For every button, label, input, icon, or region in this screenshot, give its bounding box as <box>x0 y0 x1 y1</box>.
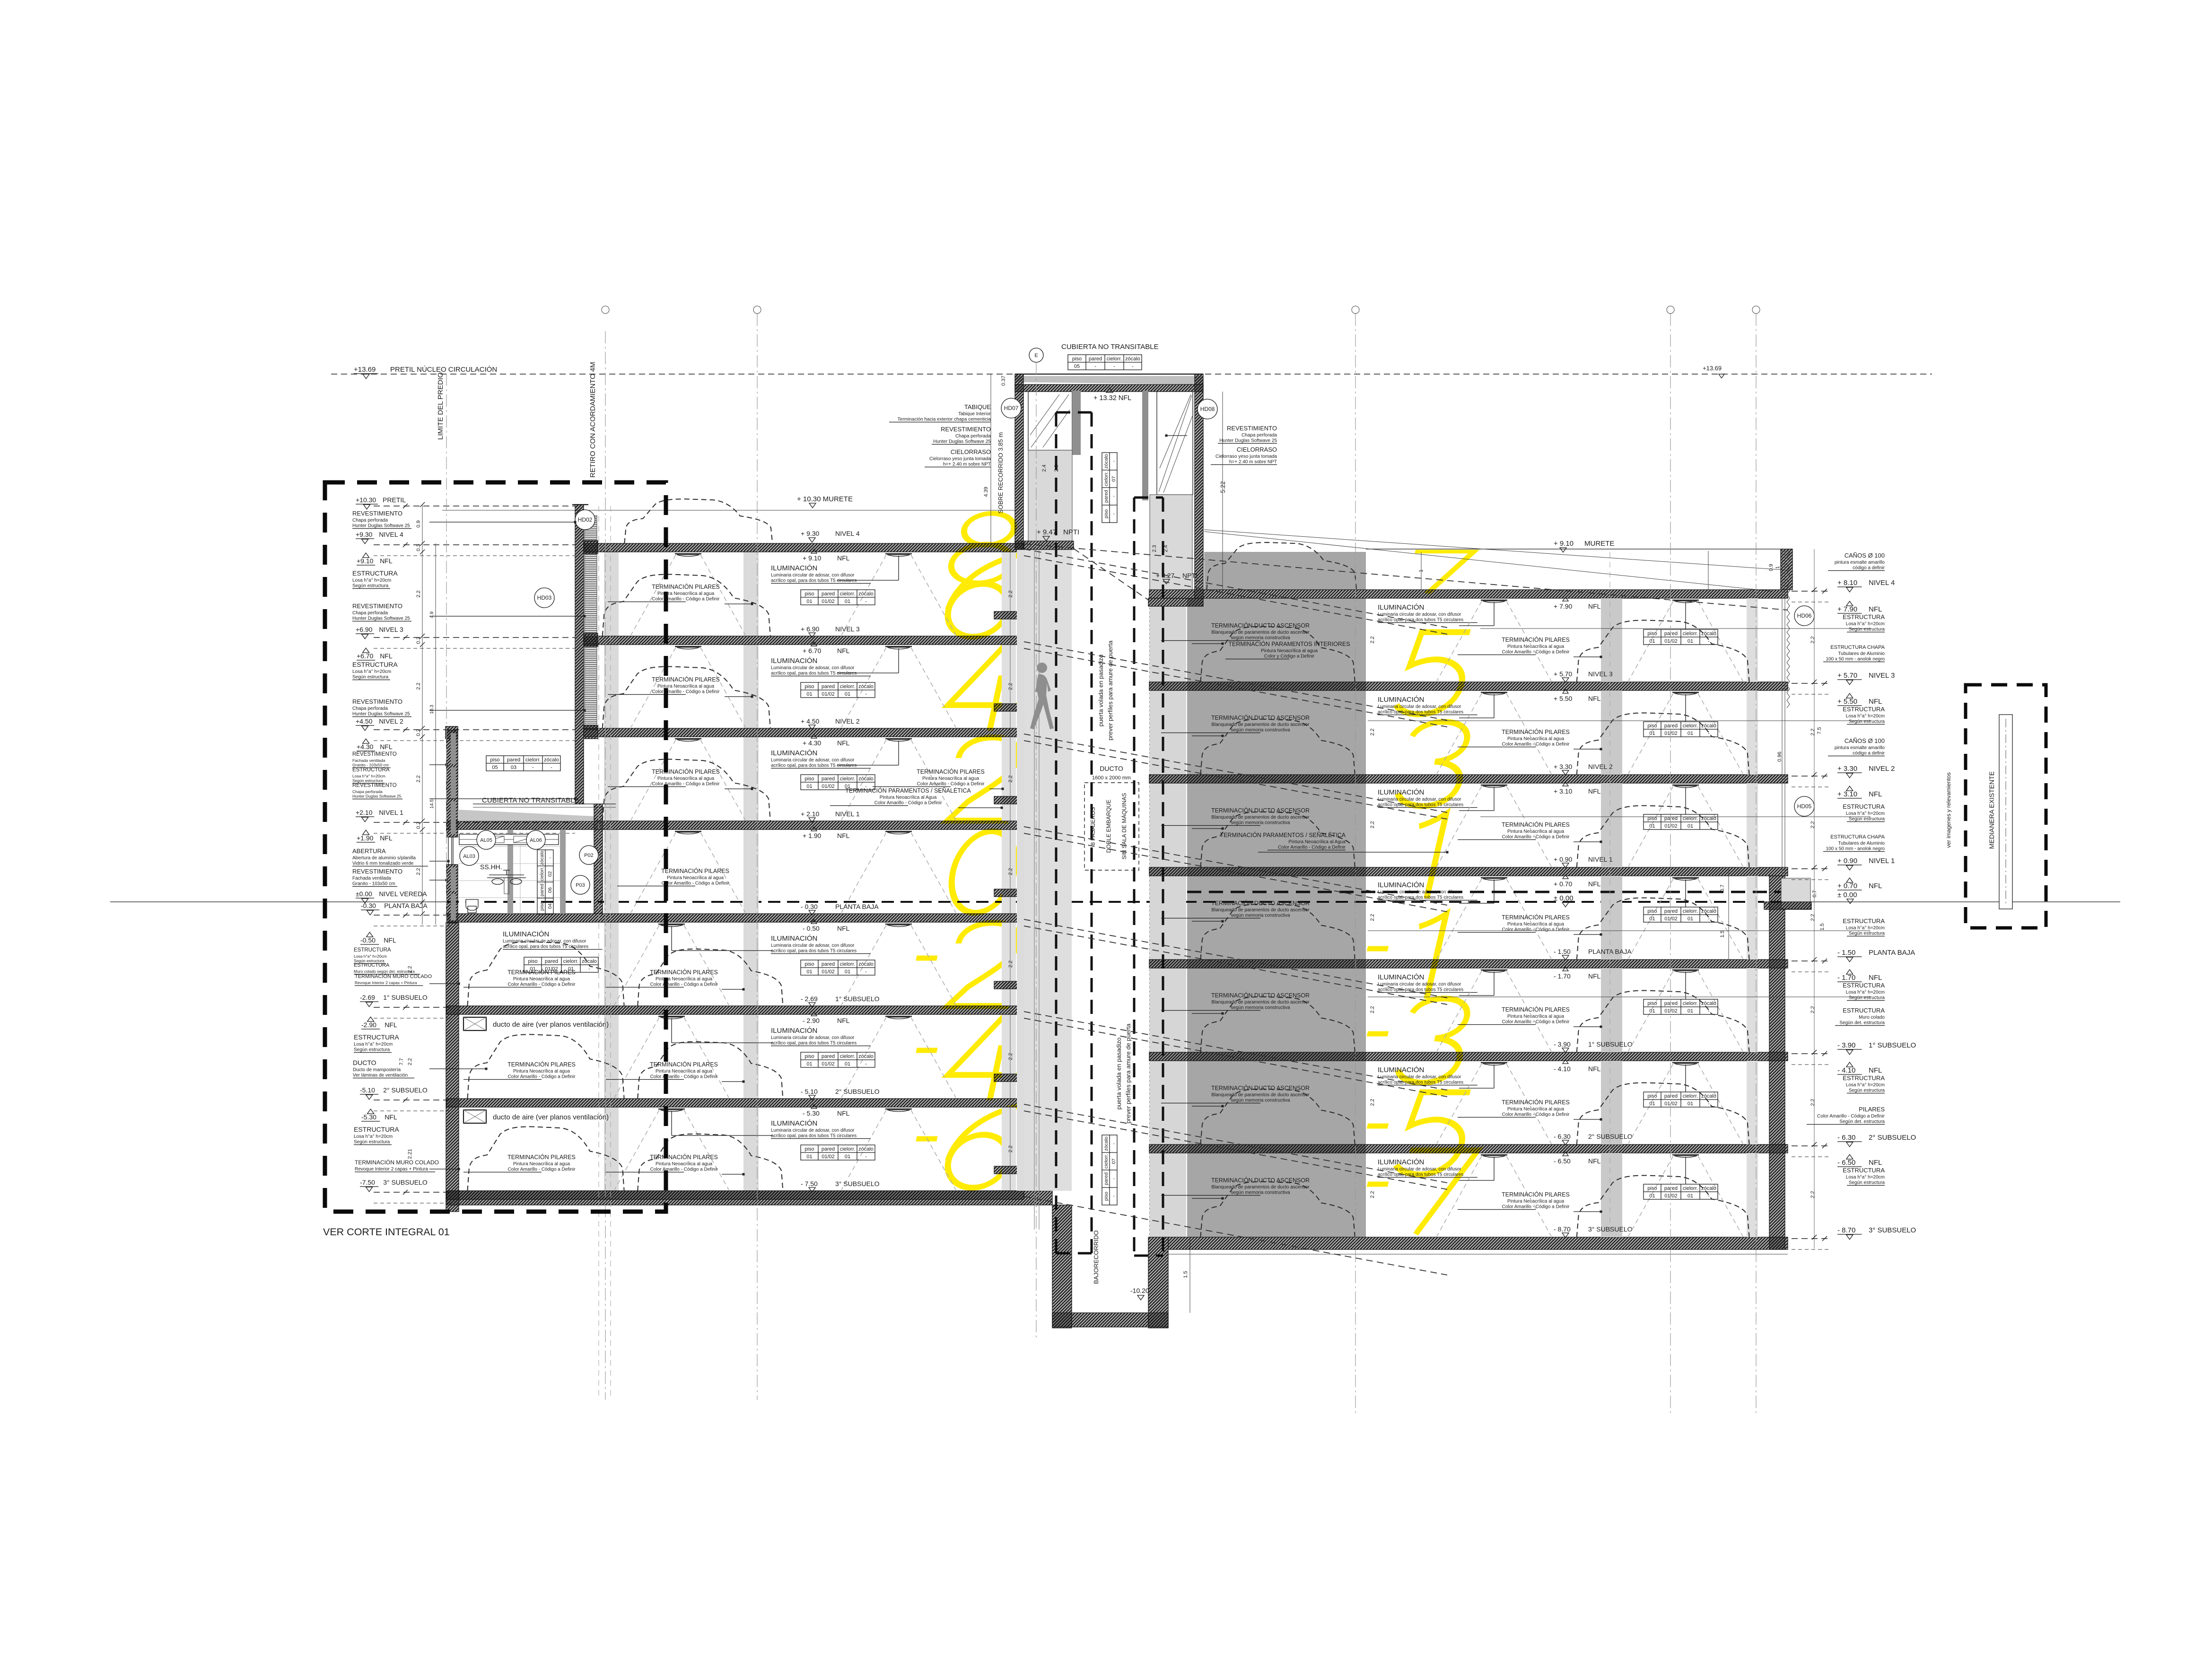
svg-text:01/02: 01/02 <box>822 691 835 697</box>
svg-text:ESTRUCTURA: ESTRUCTURA <box>352 767 390 773</box>
svg-text:-2.69: -2.69 <box>360 994 375 1001</box>
svg-text:TERMINACIÓN PARAMENTOS / SEÑAL: TERMINACIÓN PARAMENTOS / SEÑALÉTICA <box>845 787 971 794</box>
svg-text:Terminación hacia exterior cha: Terminación hacia exterior chapa cementi… <box>898 417 991 422</box>
svg-text:2.3: 2.3 <box>1054 464 1059 472</box>
svg-text:Según estructura: Según estructura <box>1849 931 1885 936</box>
svg-text:según memoria constructiva: según memoria constructiva <box>1231 1098 1290 1103</box>
svg-text:2.2: 2.2 <box>1370 821 1375 828</box>
svg-text:según memoria constructiva: según memoria constructiva <box>1231 1190 1290 1196</box>
svg-text:ESTRUCTURA: ESTRUCTURA <box>1843 803 1885 810</box>
svg-text:zócalo: zócalo <box>544 757 559 763</box>
svg-text:TERMINACIÓN PILARES: TERMINACIÓN PILARES <box>1502 636 1570 643</box>
svg-text:01: 01 <box>806 1154 812 1160</box>
svg-text:ILUMINACIÓN: ILUMINACIÓN <box>771 1027 817 1035</box>
svg-text:- 5.10: - 5.10 <box>801 1088 818 1095</box>
svg-text:NFL: NFL <box>837 1017 850 1024</box>
svg-text:NFL: NFL <box>1869 882 1882 890</box>
svg-text:Chapa perforada: Chapa perforada <box>352 789 383 794</box>
svg-text:+ 0.90: + 0.90 <box>1837 857 1857 865</box>
svg-text:NFL: NFL <box>1869 974 1882 982</box>
svg-text:REVESTIMIENTO: REVESTIMIENTO <box>1227 425 1277 432</box>
svg-text:+ 9.47: + 9.47 <box>1037 528 1057 536</box>
svg-text:±0.00: ±0.00 <box>356 890 372 898</box>
svg-text:Hunter Duglas Softwave 25: Hunter Duglas Softwave 25 <box>933 439 991 445</box>
svg-text:NFL: NFL <box>1588 1157 1601 1165</box>
svg-text:REVESTIMIENTO: REVESTIMIENTO <box>352 868 402 875</box>
svg-text:- 0.50: - 0.50 <box>803 925 820 932</box>
svg-text:acrílico opal, para dos tubos: acrílico opal, para dos tubos T5 circula… <box>1378 1172 1463 1178</box>
svg-text:h=+ 2.40 m sobre NPT: h=+ 2.40 m sobre NPT <box>943 462 991 467</box>
svg-text:HD07: HD07 <box>1004 405 1019 411</box>
svg-text:Chapa perforada: Chapa perforada <box>352 611 388 616</box>
svg-text:2.2: 2.2 <box>1370 1006 1375 1013</box>
svg-text:2.2: 2.2 <box>1810 1006 1816 1013</box>
svg-text:NPTI: NPTI <box>1063 528 1079 536</box>
svg-text:prever perfiles para amure de: prever perfiles para amure de puerta <box>1125 1023 1132 1124</box>
svg-text:TERMINACIÓN PILARES: TERMINACIÓN PILARES <box>1502 1191 1570 1198</box>
svg-text:+ 0.90: + 0.90 <box>1554 856 1573 863</box>
svg-text:07: 07 <box>1111 1159 1117 1164</box>
svg-text:2° SUBSUELO: 2° SUBSUELO <box>1869 1134 1916 1142</box>
svg-text:Según estructura: Según estructura <box>1849 627 1885 632</box>
svg-text:REVESTIMIENTO: REVESTIMIENTO <box>352 602 402 610</box>
svg-text:Según estructura: Según estructura <box>1849 1088 1885 1093</box>
svg-text:acrílico opal, para dos tubos: acrílico opal, para dos tubos T5 circula… <box>1378 618 1463 623</box>
svg-text:2.2: 2.2 <box>1008 868 1014 875</box>
svg-text:Según estructura: Según estructura <box>1849 719 1885 725</box>
svg-text:+ 3.10: + 3.10 <box>1554 787 1573 795</box>
svg-text:01: 01 <box>1649 1193 1655 1199</box>
svg-text:zócalo: zócalo <box>539 851 545 865</box>
svg-text:zócalo: zócalo <box>1701 1186 1716 1191</box>
svg-text:+ 6.90: + 6.90 <box>801 625 820 633</box>
svg-text:zócalo: zócalo <box>858 776 874 782</box>
svg-text:pared: pared <box>1664 1093 1678 1099</box>
svg-text:PRETIL: PRETIL <box>383 496 406 504</box>
svg-text:h=+ 2.40 m sobre NPT: h=+ 2.40 m sobre NPT <box>1229 460 1277 465</box>
svg-text:01/02: 01/02 <box>1664 731 1678 736</box>
svg-text:+ 4.30: + 4.30 <box>803 739 822 747</box>
svg-text:Color y Código a Definir: Color y Código a Definir <box>1264 654 1315 659</box>
svg-text:código a definir: código a definir <box>1853 751 1885 756</box>
svg-text:AL03: AL03 <box>463 854 475 859</box>
svg-text:ILUMINACIÓN: ILUMINACIÓN <box>1378 1066 1424 1074</box>
svg-text:01/02: 01/02 <box>822 599 835 604</box>
svg-text:TERMINACIÓN PILARES: TERMINACIÓN PILARES <box>507 969 576 976</box>
svg-text:2.2: 2.2 <box>1810 1191 1816 1198</box>
svg-text:Ver láminas de ventilación: Ver láminas de ventilación <box>353 1073 408 1078</box>
svg-text:+ 4.50: + 4.50 <box>801 717 820 725</box>
svg-text:Pintura Neoacrílica al agua: Pintura Neoacrílica al agua <box>1507 736 1565 742</box>
svg-text:PLANTA BAJA: PLANTA BAJA <box>835 903 879 910</box>
svg-text:TERMINACIÓN PILARES: TERMINACIÓN PILARES <box>507 1153 576 1161</box>
svg-text:05: 05 <box>1074 364 1080 369</box>
svg-text:ducto de aire (ver planos vent: ducto de aire (ver planos ventilación) <box>493 1021 609 1029</box>
svg-text:pared: pared <box>507 757 520 763</box>
svg-text:- 1.50: - 1.50 <box>1554 948 1571 955</box>
svg-text:CAÑOS Ø 100: CAÑOS Ø 100 <box>1845 552 1885 559</box>
svg-text:-: - <box>1111 460 1117 462</box>
svg-text:Granito - 103x50 cm: Granito - 103x50 cm <box>352 763 389 768</box>
svg-text:pared: pared <box>545 959 558 964</box>
svg-text:CAÑOS Ø 100: CAÑOS Ø 100 <box>1845 737 1885 744</box>
svg-text:1° SUBSUELO: 1° SUBSUELO <box>1869 1041 1916 1049</box>
svg-text:- 6.30: - 6.30 <box>1837 1134 1855 1142</box>
svg-text:Luminaria circular de adosar,: Luminaria circular de adosar, con difuso… <box>771 573 855 578</box>
svg-text:Color Amarillo - Código a Defi: Color Amarillo - Código a Definir <box>652 597 720 602</box>
svg-text:ESTRUCTURA: ESTRUCTURA <box>1843 706 1885 713</box>
svg-text:-: - <box>1132 364 1134 369</box>
svg-text:2.2: 2.2 <box>1370 728 1375 735</box>
svg-text:Según det. estructura: Según det. estructura <box>1839 1021 1885 1026</box>
svg-text:01: 01 <box>1649 1101 1655 1107</box>
svg-text:Losa h°a° h=20cm: Losa h°a° h=20cm <box>352 669 391 674</box>
svg-text:CUBIERTA NO TRANSITABLE: CUBIERTA NO TRANSITABLE <box>482 796 579 804</box>
svg-text:-: - <box>1113 364 1115 369</box>
svg-text:2.2: 2.2 <box>1008 683 1014 690</box>
svg-text:+1.90: +1.90 <box>357 834 374 842</box>
svg-text:MEDIANERA EXISTENTE: MEDIANERA EXISTENTE <box>1988 771 1995 849</box>
svg-text:piso: piso <box>1647 1093 1657 1099</box>
svg-text:Según estructura: Según estructura <box>352 778 383 783</box>
svg-text:NFL: NFL <box>837 554 850 562</box>
svg-text:Losa h°a° h=20cm: Losa h°a° h=20cm <box>354 1134 393 1139</box>
svg-text:Luminaria circular de adosar,: Luminaria circular de adosar, con difuso… <box>503 939 586 944</box>
svg-text:2° SUBSUELO: 2° SUBSUELO <box>383 1086 428 1094</box>
svg-text:Losa h°a° h=20cm: Losa h°a° h=20cm <box>1846 714 1885 719</box>
svg-text:pared: pared <box>822 961 835 967</box>
svg-text:2.2: 2.2 <box>1810 728 1816 735</box>
svg-text:ILUMINACIÓN: ILUMINACIÓN <box>771 657 817 665</box>
svg-text:CIELORRASO: CIELORRASO <box>951 448 991 455</box>
svg-text:Color Amarillo - Código a Defi: Color Amarillo - Código a Definir <box>917 782 985 787</box>
svg-text:Losa h°a° h=20cm: Losa h°a° h=20cm <box>352 578 391 583</box>
svg-text:piso: piso <box>804 591 814 597</box>
svg-text:piso: piso <box>1647 1186 1657 1191</box>
svg-text:ILUMINACIÓN: ILUMINACIÓN <box>1378 788 1424 796</box>
svg-text:2.4: 2.4 <box>1163 545 1169 552</box>
svg-text:ESTRUCTURA: ESTRUCTURA <box>352 569 398 577</box>
svg-text:TERMINACIÓN PILARES: TERMINACIÓN PILARES <box>652 676 720 683</box>
svg-text:-: - <box>1111 495 1117 497</box>
svg-text:zócalo: zócalo <box>1125 356 1140 362</box>
svg-text:+ 0.70: + 0.70 <box>1554 880 1573 888</box>
svg-text:zócalo: zócalo <box>858 1146 874 1152</box>
svg-text:01: 01 <box>845 1154 850 1160</box>
svg-text:ESTRUCTURA: ESTRUCTURA <box>1843 917 1885 925</box>
svg-text:2.2: 2.2 <box>1008 775 1014 782</box>
svg-text:zócalo: zócalo <box>1103 454 1109 469</box>
svg-text:cielorr.: cielorr. <box>840 776 855 782</box>
svg-text:Pintura Neoacrílica al agua: Pintura Neoacrílica al agua <box>1507 1199 1565 1204</box>
svg-text:cielorr.: cielorr. <box>563 959 578 964</box>
svg-text:NFL: NFL <box>380 834 393 842</box>
svg-text:0.2: 0.2 <box>416 637 421 644</box>
svg-text:- 1.70: - 1.70 <box>1837 974 1855 982</box>
svg-text:01: 01 <box>1649 1008 1655 1014</box>
svg-text:-: - <box>865 1154 867 1160</box>
svg-text:pared: pared <box>1089 356 1102 362</box>
svg-text:cielorr.: cielorr. <box>1683 631 1698 637</box>
svg-text:-10.20: -10.20 <box>1130 1287 1149 1294</box>
svg-text:01/02: 01/02 <box>1664 916 1678 922</box>
svg-text:01: 01 <box>1687 1008 1693 1014</box>
svg-text:01: 01 <box>845 599 850 604</box>
svg-text:Chapa perforada: Chapa perforada <box>352 706 388 711</box>
svg-text:-: - <box>1094 364 1096 369</box>
svg-text:2° SUBSUELO: 2° SUBSUELO <box>835 1088 880 1095</box>
svg-text:-: - <box>865 969 867 975</box>
svg-text:1.5: 1.5 <box>1720 930 1725 937</box>
svg-text:-: - <box>1111 1143 1117 1144</box>
svg-text:NIVEL 4: NIVEL 4 <box>379 531 403 538</box>
svg-text:ILUMINACIÓN: ILUMINACIÓN <box>771 564 817 572</box>
svg-text:acrílico opal, para dos tubos: acrílico opal, para dos tubos T5 circula… <box>771 578 857 584</box>
svg-text:± 0.00: ± 0.00 <box>1837 891 1857 899</box>
svg-text:TERMINACIÓN PILARES: TERMINACIÓN PILARES <box>507 1061 576 1068</box>
svg-text:ESTRUCTURA CHAPA: ESTRUCTURA CHAPA <box>1830 834 1885 840</box>
svg-text:ILUMINACIÓN: ILUMINACIÓN <box>1378 696 1424 704</box>
svg-text:+6.70: +6.70 <box>357 652 374 660</box>
svg-text:Color Amarillo - Código a Defi: Color Amarillo - Código a Definir <box>650 982 718 987</box>
svg-text:- 1.50: - 1.50 <box>1837 949 1855 957</box>
svg-text:NIVEL 3: NIVEL 3 <box>835 625 860 633</box>
svg-text:cielorr.: cielorr. <box>1683 1186 1698 1191</box>
svg-text:cielorr.: cielorr. <box>525 757 541 763</box>
svg-text:cielorr.: cielorr. <box>840 1054 855 1059</box>
svg-text:Losa h°a° h=20cm: Losa h°a° h=20cm <box>352 774 385 778</box>
svg-text:- 6.50: - 6.50 <box>1554 1157 1571 1165</box>
svg-text:NIVEL 3: NIVEL 3 <box>1869 672 1895 680</box>
svg-text:+ 5.70: + 5.70 <box>1837 672 1857 680</box>
svg-text:HD05: HD05 <box>1797 803 1812 810</box>
svg-text:+ 3.10: + 3.10 <box>1837 790 1857 798</box>
svg-text:- 7.50: - 7.50 <box>801 1180 818 1187</box>
svg-text:zócalo: zócalo <box>582 959 597 964</box>
svg-text:Pintura Neoacrílica al agua: Pintura Neoacrílica al agua <box>513 1161 570 1167</box>
svg-text:+6.90: +6.90 <box>356 626 373 633</box>
svg-text:piso: piso <box>539 901 545 910</box>
svg-text:Color Amarillo - Código a Defi: Color Amarillo - Código a Definir <box>508 982 576 987</box>
svg-text:Pintura Neoacrílica al agua: Pintura Neoacrílica al agua <box>1261 648 1318 654</box>
svg-text:Losa h°a° h=20cm: Losa h°a° h=20cm <box>1846 811 1885 816</box>
svg-text:zócalo: zócalo <box>858 961 874 967</box>
svg-text:Color Amarillo - Código a Defi: Color Amarillo - Código a Definir <box>652 690 720 695</box>
svg-text:-: - <box>551 765 552 770</box>
svg-text:zócalo: zócalo <box>1701 723 1716 729</box>
svg-text:Luminaria circular de adosar,: Luminaria circular de adosar, con difuso… <box>771 1035 855 1040</box>
svg-text:01: 01 <box>1649 823 1655 829</box>
svg-text:LIMITE DEL PREDIO: LIMITE DEL PREDIO <box>437 372 445 440</box>
svg-text:NFL: NFL <box>1588 695 1601 702</box>
svg-text:+4.50: +4.50 <box>356 717 373 725</box>
svg-text:+ 9.30: + 9.30 <box>801 530 820 537</box>
svg-text:04: 04 <box>547 903 553 909</box>
svg-text:7.5: 7.5 <box>1817 727 1822 734</box>
svg-text:2.2: 2.2 <box>1008 590 1014 597</box>
svg-text:HD02: HD02 <box>578 516 593 523</box>
svg-text:- 3.90: - 3.90 <box>1837 1041 1855 1049</box>
svg-text:HD03: HD03 <box>537 594 552 601</box>
svg-text:-: - <box>865 691 867 697</box>
svg-text:01: 01 <box>1687 638 1693 644</box>
svg-text:NIVEL 4: NIVEL 4 <box>1869 579 1895 587</box>
svg-text:Según estructura: Según estructura <box>352 675 389 680</box>
svg-text:Tubulares de Aluminio: Tubulares de Aluminio <box>1838 651 1885 656</box>
svg-text:Revoque Interior 2 capas + Pin: Revoque Interior 2 capas + Pintura <box>355 1167 428 1172</box>
svg-text:ducto de aire (ver planos vent: ducto de aire (ver planos ventilación) <box>493 1113 609 1121</box>
svg-text:pintura esmalte amarillo: pintura esmalte amarillo <box>1835 745 1885 751</box>
svg-text:NIVEL 1: NIVEL 1 <box>379 809 403 816</box>
svg-text:- 4.10: - 4.10 <box>1837 1066 1855 1074</box>
svg-text:Pintura Neoacrílica al agua: Pintura Neoacrílica al agua <box>1507 1107 1565 1112</box>
svg-text:NFL: NFL <box>380 652 393 660</box>
svg-text:2.2: 2.2 <box>407 1058 413 1065</box>
svg-text:- 0.30: - 0.30 <box>801 903 818 910</box>
svg-text:puerta volada en pasadizo: puerta volada en pasadizo <box>1115 1038 1122 1110</box>
svg-text:- 5.30: - 5.30 <box>803 1109 820 1117</box>
svg-text:01: 01 <box>806 969 812 975</box>
svg-text:01: 01 <box>806 691 812 697</box>
svg-text:+ 7.90: + 7.90 <box>1837 605 1857 613</box>
svg-text:CIELORRASO: CIELORRASO <box>1237 446 1277 453</box>
svg-text:Losa h°a° h=20cm: Losa h°a° h=20cm <box>1846 990 1885 995</box>
svg-text:ESTRUCTURA: ESTRUCTURA <box>354 1033 399 1041</box>
svg-text:piso: piso <box>1647 1001 1657 1006</box>
svg-text:ESTRUCTURA: ESTRUCTURA <box>354 947 391 953</box>
svg-text:Según det. estructura: Según det. estructura <box>1839 1119 1885 1125</box>
svg-text:± 0.00: ± 0.00 <box>1554 894 1574 902</box>
svg-text:Muro colado según det. estruct: Muro colado según det. estructura <box>354 969 415 974</box>
svg-text:piso: piso <box>804 776 814 782</box>
svg-text:1° SUBSUELO: 1° SUBSUELO <box>1588 1040 1633 1048</box>
svg-text:zócalo: zócalo <box>858 591 874 597</box>
svg-text:NFL: NFL <box>1588 880 1601 888</box>
svg-text:+ 5.70: + 5.70 <box>1554 670 1573 678</box>
svg-text:0.7: 0.7 <box>1812 890 1818 897</box>
svg-text:NPTI: NPTI <box>1182 572 1198 579</box>
svg-text:4.9: 4.9 <box>429 611 435 618</box>
svg-text:NFL: NFL <box>1588 787 1601 795</box>
svg-text:Vidrio 6 mm tonalizado verde: Vidrio 6 mm tonalizado verde <box>352 861 414 866</box>
svg-text:ILUMINACIÓN: ILUMINACIÓN <box>771 1119 817 1127</box>
svg-text:acrílico opal, para dos tubos: acrílico opal, para dos tubos T5 circula… <box>771 671 857 676</box>
svg-text:ABERTURA: ABERTURA <box>352 847 386 855</box>
svg-text:2.2: 2.2 <box>1810 1099 1816 1106</box>
svg-text:zócalo: zócalo <box>1103 1136 1109 1151</box>
svg-text:piso: piso <box>804 684 814 690</box>
svg-text:según memoria constructiva: según memoria constructiva <box>1231 636 1290 641</box>
svg-text:- 4.10: - 4.10 <box>1554 1065 1571 1073</box>
svg-text:PILARES: PILARES <box>1859 1106 1885 1113</box>
svg-text:ILUMINACIÓN: ILUMINACIÓN <box>503 930 549 938</box>
svg-text:01: 01 <box>1649 638 1655 644</box>
svg-text:05: 05 <box>492 765 498 770</box>
svg-text:TERMINACIÓN PILARES: TERMINACIÓN PILARES <box>1502 728 1570 735</box>
svg-text:-: - <box>588 966 590 972</box>
svg-text:- 2.69: - 2.69 <box>801 995 818 1003</box>
svg-text:NIVEL 2: NIVEL 2 <box>835 717 860 725</box>
svg-text:TERMINACIÓN PILARES: TERMINACIÓN PILARES <box>652 583 720 590</box>
svg-text:NFL: NFL <box>1588 1065 1601 1073</box>
svg-text:2.2: 2.2 <box>1810 821 1816 828</box>
svg-text:pared: pared <box>1664 1186 1678 1191</box>
svg-text:TERMINACIÓN PILARES: TERMINACIÓN PILARES <box>917 768 985 775</box>
svg-text:Pintura Neoacrílica al agua: Pintura Neoacrílica al agua <box>922 776 979 781</box>
svg-text:NFL: NFL <box>837 1109 850 1117</box>
svg-text:Pintura Neoacrílica al agua: Pintura Neoacrílica al agua <box>1507 1014 1565 1019</box>
svg-text:ILUMINACIÓN: ILUMINACIÓN <box>1378 603 1424 611</box>
svg-text:14.5: 14.5 <box>429 799 435 809</box>
svg-text:1° SUBSUELO: 1° SUBSUELO <box>835 995 880 1003</box>
svg-text:puerta volada en pasadizo: puerta volada en pasadizo <box>1097 655 1104 727</box>
svg-text:NIVEL 1: NIVEL 1 <box>1869 857 1895 865</box>
svg-text:Granito - 103x50 cm: Granito - 103x50 cm <box>352 882 395 887</box>
svg-text:+ 5.50: + 5.50 <box>1837 698 1857 706</box>
svg-text:Pintura Neoacrílica al agua: Pintura Neoacrílica al agua <box>513 1069 570 1074</box>
svg-text:cielorr.: cielorr. <box>1103 472 1109 486</box>
svg-text:100 x 50 mm - anolok negro: 100 x 50 mm - anolok negro <box>1826 847 1885 852</box>
svg-text:Color Amarillo - Código a Defi: Color Amarillo - Código a Definir <box>508 1167 576 1172</box>
svg-text:Luminaria circular de adosar,: Luminaria circular de adosar, con difuso… <box>771 1128 855 1133</box>
svg-text:Blanqueado de paramentos de du: Blanqueado de paramentos de ducto ascens… <box>1211 908 1310 913</box>
svg-text:+ 6.70: + 6.70 <box>803 647 822 655</box>
svg-text:ESTRUCTURA: ESTRUCTURA <box>1843 613 1885 620</box>
svg-text:NFL: NFL <box>380 743 393 751</box>
svg-text:Luminaria circular de adosar,: Luminaria circular de adosar, con difuso… <box>771 665 855 671</box>
svg-text:Fachada ventilada: Fachada ventilada <box>352 758 385 763</box>
svg-text:zócalo: zócalo <box>858 1054 874 1059</box>
svg-text:Pintura Neoacrílica al agua: Pintura Neoacrílica al agua <box>657 776 715 781</box>
svg-text:NFL: NFL <box>1869 605 1882 613</box>
svg-text:AL06: AL06 <box>530 838 542 843</box>
svg-text:pared: pared <box>1103 1172 1109 1185</box>
svg-text:Luminaria circular de adosar,: Luminaria circular de adosar, con difuso… <box>1378 1074 1461 1080</box>
svg-text:-2.90: -2.90 <box>361 1021 376 1029</box>
svg-text:NIVEL 2: NIVEL 2 <box>379 717 403 725</box>
svg-text:+ 2.10: + 2.10 <box>801 810 820 818</box>
svg-text:DOBLE EMBARQUE: DOBLE EMBARQUE <box>1105 800 1112 853</box>
svg-text:ESTRUCTURA: ESTRUCTURA <box>352 661 398 668</box>
svg-text:Luminaria circular de adosar,: Luminaria circular de adosar, con difuso… <box>771 943 855 948</box>
svg-text:01: 01 <box>845 691 850 697</box>
svg-text:Losa h°a° h=20cm: Losa h°a° h=20cm <box>1846 621 1885 627</box>
svg-text:pared: pared <box>1664 1001 1678 1006</box>
svg-text:pared: pared <box>822 1054 835 1059</box>
svg-text:01: 01 <box>1649 731 1655 736</box>
svg-text:Hunter Duglas Softwave 25: Hunter Duglas Softwave 25 <box>352 616 410 621</box>
svg-text:acrílico opal, para dos tubos: acrílico opal, para dos tubos T5 circula… <box>1378 710 1463 715</box>
svg-text:NFL: NFL <box>837 647 850 655</box>
svg-text:Según estructura: Según estructura <box>1849 1180 1885 1186</box>
svg-text:1.5: 1.5 <box>1819 923 1825 930</box>
svg-text:NFL: NFL <box>1869 1159 1882 1167</box>
svg-text:1° SUBSUELO: 1° SUBSUELO <box>383 994 428 1001</box>
svg-text:piso: piso <box>1103 1192 1109 1201</box>
svg-text:piso: piso <box>528 959 537 964</box>
svg-text:VER CORTE INTEGRAL 01: VER CORTE INTEGRAL 01 <box>323 1226 450 1238</box>
svg-text:2.2: 2.2 <box>1810 636 1816 643</box>
svg-text:acrílico opal, para dos tubos: acrílico opal, para dos tubos T5 circula… <box>1378 1080 1463 1085</box>
svg-text:Muro colado: Muro colado <box>1859 1015 1885 1020</box>
svg-text:AL05: AL05 <box>480 838 492 843</box>
svg-text:zócalo: zócalo <box>858 684 874 690</box>
svg-text:NFL: NFL <box>384 936 396 944</box>
svg-text:piso: piso <box>490 757 499 763</box>
svg-text:piso: piso <box>1647 908 1657 914</box>
svg-text:NIVEL 2: NIVEL 2 <box>1869 765 1895 773</box>
svg-text:01: 01 <box>1687 916 1693 922</box>
